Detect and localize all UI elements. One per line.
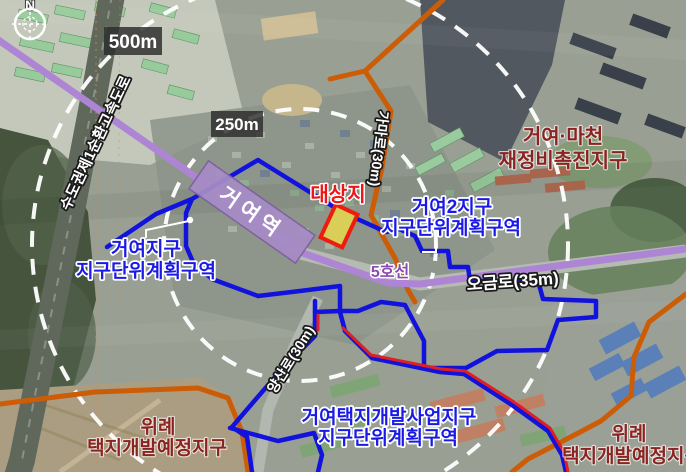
- label-wirye-sw-line1: 위례: [141, 416, 176, 438]
- label-wirye-se-line2: 택지개발예정지구: [562, 445, 686, 467]
- label-renewal-line1: 거여·마천: [523, 125, 603, 148]
- target-site-label: 대상지: [310, 183, 365, 206]
- leader-dot: [187, 217, 193, 223]
- label-geoyeo-line1: 거여지구: [111, 238, 181, 260]
- label-taekji-line1: 거여택지개발사업지구: [302, 406, 477, 428]
- label-geoyeo2-line2: 지구단위계획구역: [381, 217, 521, 239]
- label-geoyeo-line2: 지구단위계획구역: [76, 260, 216, 282]
- ring-label-500m: 500m: [109, 32, 158, 53]
- label-taekji-line2: 지구단위계획구역: [318, 427, 458, 449]
- label-wirye-se-line1: 위례: [612, 423, 647, 445]
- boundary-yangsan-stub: [315, 311, 340, 312]
- subway-line-label: 5호선: [371, 263, 409, 281]
- label-wirye-sw-line2: 택지개발예정지구: [87, 437, 227, 459]
- label-geoyeo2-line1: 거여2지구: [412, 196, 493, 218]
- satellite-map: 거여역 500m 250m N 수도권제1순환고속도로 가마로(30m) 오금로…: [0, 0, 686, 472]
- ring-label-250m: 250m: [215, 115, 258, 134]
- label-renewal-line2: 재정비촉진지구: [499, 149, 628, 172]
